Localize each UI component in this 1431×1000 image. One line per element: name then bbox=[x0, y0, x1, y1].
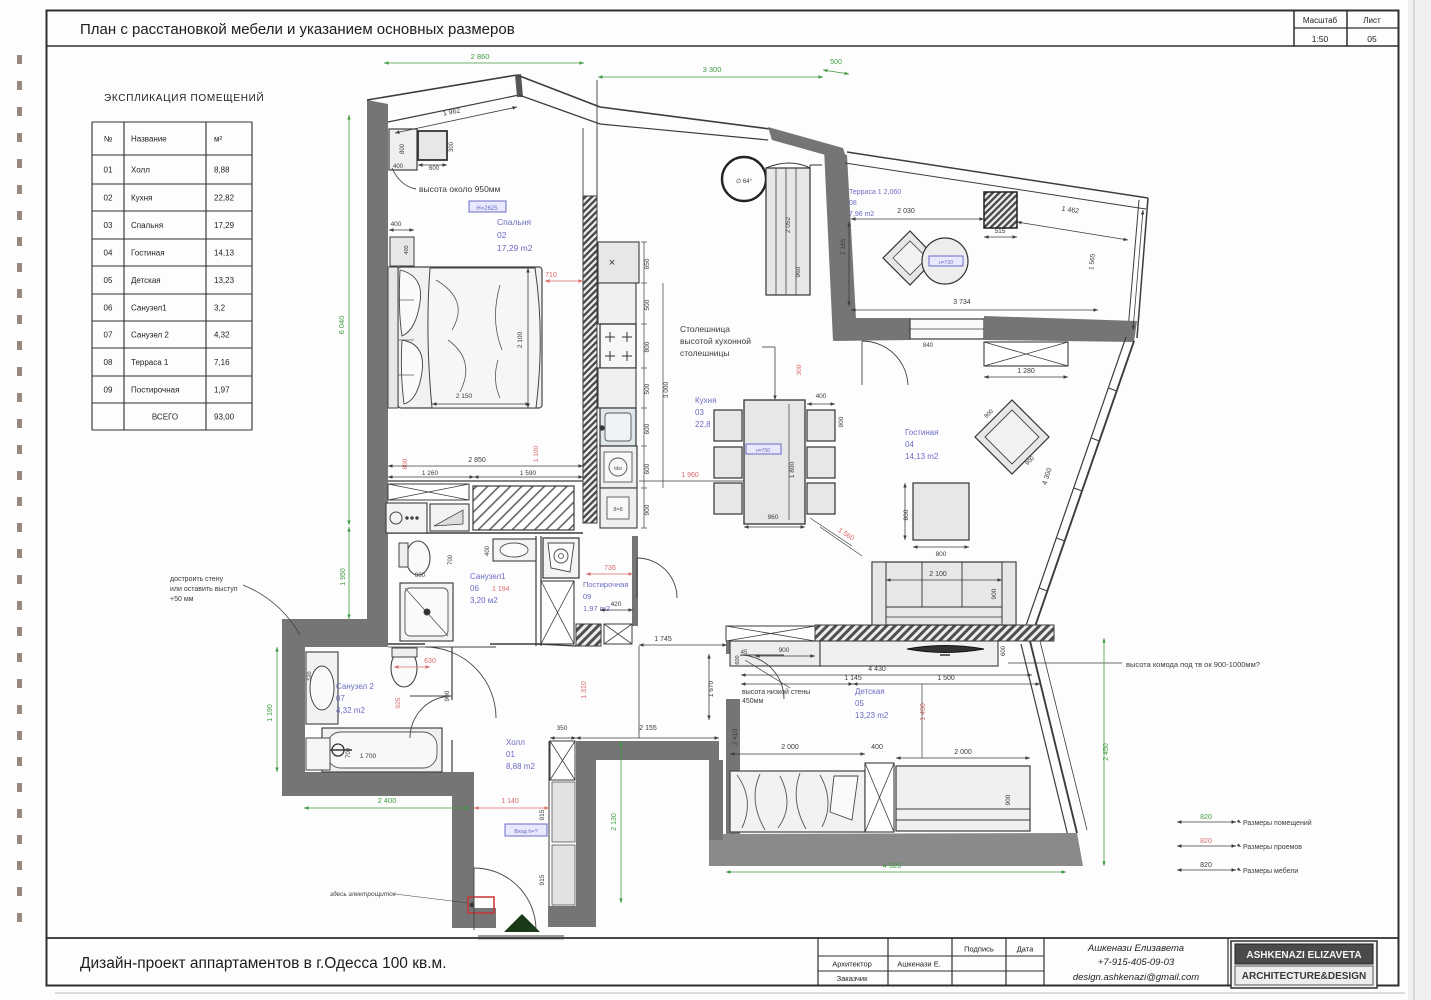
svg-text:8,88: 8,88 bbox=[214, 166, 230, 175]
svg-text:Заказчик: Заказчик bbox=[837, 974, 869, 983]
svg-text:4,32: 4,32 bbox=[214, 331, 230, 340]
svg-text:×: × bbox=[609, 257, 615, 269]
svg-text:3 000: 3 000 bbox=[663, 381, 670, 398]
svg-text:09: 09 bbox=[104, 386, 113, 395]
svg-text:Кухня: Кухня bbox=[695, 396, 716, 405]
svg-text:1 450: 1 450 bbox=[920, 703, 927, 721]
svg-text:1 100: 1 100 bbox=[533, 445, 540, 462]
svg-text:высота низкой стены: высота низкой стены bbox=[742, 688, 810, 696]
svg-text:650: 650 bbox=[644, 258, 651, 269]
svg-text:Терраса 1: Терраса 1 bbox=[131, 358, 169, 367]
svg-text:1 140: 1 140 bbox=[501, 798, 519, 805]
svg-text:1 960: 1 960 bbox=[681, 472, 699, 479]
svg-text:4,32 m2: 4,32 m2 bbox=[336, 706, 365, 715]
svg-text:∅ 64°: ∅ 64° bbox=[736, 178, 753, 185]
svg-text:05: 05 bbox=[104, 276, 113, 285]
svg-text:1 700: 1 700 bbox=[360, 753, 377, 760]
svg-text:design.ashkenazi@gmail.com: design.ashkenazi@gmail.com bbox=[1073, 972, 1199, 983]
svg-text:1 260: 1 260 bbox=[422, 470, 439, 477]
svg-text:600: 600 bbox=[644, 463, 651, 474]
svg-text:Масштаб: Масштаб bbox=[1303, 16, 1338, 25]
svg-text:н=720: н=720 bbox=[939, 260, 953, 266]
svg-text:500: 500 bbox=[830, 59, 842, 66]
svg-text:4 430: 4 430 bbox=[868, 666, 886, 673]
svg-text:915: 915 bbox=[539, 809, 546, 820]
svg-text:500: 500 bbox=[644, 299, 651, 310]
svg-text:14,13: 14,13 bbox=[214, 249, 235, 258]
svg-text:900: 900 bbox=[838, 416, 845, 427]
svg-text:05: 05 bbox=[855, 699, 864, 708]
svg-text:05: 05 bbox=[1367, 34, 1377, 44]
svg-text:2 100: 2 100 bbox=[929, 571, 947, 578]
svg-text:22,82: 22,82 bbox=[214, 194, 235, 203]
svg-text:2 410: 2 410 bbox=[732, 728, 739, 745]
svg-text:Размеры проемов: Размеры проемов bbox=[1243, 844, 1302, 851]
svg-text:08: 08 bbox=[849, 200, 857, 207]
svg-text:Название: Название bbox=[131, 135, 167, 144]
svg-text:1 190: 1 190 bbox=[267, 704, 274, 722]
svg-text:высота комода под тв ок 900-10: высота комода под тв ок 900-1000мм? bbox=[1126, 660, 1260, 669]
svg-text:900: 900 bbox=[1005, 794, 1012, 805]
svg-text:3 300: 3 300 bbox=[703, 65, 722, 74]
svg-text:Размеры мебели: Размеры мебели bbox=[1243, 867, 1298, 875]
svg-text:07: 07 bbox=[336, 694, 345, 703]
svg-text:столешницы: столешницы bbox=[680, 348, 730, 358]
svg-text:800: 800 bbox=[903, 509, 910, 520]
svg-text:1 590: 1 590 bbox=[520, 470, 537, 477]
svg-text:Детская: Детская bbox=[855, 687, 885, 696]
svg-text:500: 500 bbox=[644, 383, 651, 394]
svg-text:600: 600 bbox=[644, 423, 651, 434]
svg-text:04: 04 bbox=[104, 249, 113, 258]
svg-text:1 280: 1 280 bbox=[1017, 368, 1035, 375]
svg-text:09: 09 bbox=[583, 592, 591, 601]
svg-text:736: 736 bbox=[604, 565, 616, 572]
svg-text:ASHKENAZI ELIZAVETA: ASHKENAZI ELIZAVETA bbox=[1246, 950, 1361, 961]
svg-text:Холл: Холл bbox=[131, 166, 150, 175]
svg-text:700: 700 bbox=[346, 747, 352, 758]
svg-text:2 000: 2 000 bbox=[954, 749, 972, 756]
svg-text:900: 900 bbox=[644, 504, 651, 515]
svg-text:здесь электрощиток: здесь электрощиток bbox=[329, 890, 397, 898]
svg-text:1:50: 1:50 bbox=[1312, 34, 1329, 44]
svg-text:630: 630 bbox=[424, 658, 436, 665]
svg-text:Гостиная: Гостиная bbox=[131, 249, 165, 258]
svg-text:13,23: 13,23 bbox=[214, 276, 235, 285]
svg-text:01: 01 bbox=[506, 750, 515, 759]
svg-text:Холл: Холл bbox=[506, 738, 525, 747]
svg-text:420: 420 bbox=[611, 601, 622, 608]
svg-text:2 100: 2 100 bbox=[517, 331, 524, 348]
svg-text:800: 800 bbox=[402, 458, 409, 469]
svg-text:Дата: Дата bbox=[1017, 945, 1034, 954]
svg-text:2 155: 2 155 bbox=[639, 725, 657, 732]
svg-text:840: 840 bbox=[923, 343, 934, 349]
svg-text:1 745: 1 745 bbox=[654, 636, 672, 643]
svg-text:800: 800 bbox=[415, 573, 426, 579]
svg-text:820: 820 bbox=[1200, 814, 1212, 821]
svg-text:8,88 m2: 8,88 m2 bbox=[506, 762, 535, 771]
svg-text:3 734: 3 734 bbox=[953, 299, 971, 306]
svg-text:высота около 950мм: высота около 950мм bbox=[419, 184, 501, 194]
svg-text:или оставить выступ: или оставить выступ bbox=[170, 586, 238, 593]
svg-text:Кухня: Кухня bbox=[131, 194, 152, 203]
svg-text:300: 300 bbox=[796, 364, 803, 375]
svg-text:1 310: 1 310 bbox=[581, 681, 588, 699]
svg-text:700: 700 bbox=[448, 554, 454, 565]
svg-text:710: 710 bbox=[545, 272, 557, 279]
svg-text:820: 820 bbox=[1200, 862, 1212, 869]
svg-text:400: 400 bbox=[391, 221, 402, 228]
svg-text:04: 04 bbox=[905, 440, 914, 449]
svg-text:Санузел1: Санузел1 bbox=[131, 304, 167, 313]
svg-text:Постирочная: Постирочная bbox=[131, 386, 179, 395]
svg-text:2 030: 2 030 bbox=[897, 208, 915, 215]
svg-text:45: 45 bbox=[741, 650, 748, 656]
svg-text:1 145: 1 145 bbox=[844, 675, 862, 682]
svg-text:Гостиная: Гостиная bbox=[905, 428, 939, 437]
svg-text:1 800: 1 800 bbox=[789, 461, 796, 478]
svg-text:Спальня: Спальня bbox=[497, 217, 532, 227]
svg-text:350: 350 bbox=[557, 725, 568, 732]
svg-text:06: 06 bbox=[104, 304, 113, 313]
svg-text:07: 07 bbox=[104, 331, 113, 340]
svg-text:Постирочная: Постирочная bbox=[583, 580, 628, 589]
svg-text:820: 820 bbox=[1200, 838, 1212, 845]
svg-text:1,97: 1,97 bbox=[214, 386, 230, 395]
svg-text:515: 515 bbox=[995, 228, 1006, 235]
svg-text:1 500: 1 500 bbox=[937, 675, 955, 682]
svg-text:План с расстановкой мебели и: План с расстановкой мебели и указанием о… bbox=[80, 21, 515, 38]
svg-text:915: 915 bbox=[539, 874, 546, 885]
svg-text:Санузел 2: Санузел 2 bbox=[336, 682, 374, 691]
svg-text:02: 02 bbox=[497, 230, 507, 240]
svg-text:2 130: 2 130 bbox=[611, 813, 618, 831]
svg-text:17,29 m2: 17,29 m2 bbox=[497, 243, 533, 253]
svg-text:400: 400 bbox=[871, 744, 883, 751]
svg-text:03: 03 bbox=[695, 408, 704, 417]
svg-text:3,20 м2: 3,20 м2 bbox=[470, 596, 498, 605]
svg-text:высотой кухонной: высотой кухонной bbox=[680, 336, 751, 346]
svg-text:900: 900 bbox=[779, 647, 790, 654]
svg-text:ARCHITECTURE&DESIGN: ARCHITECTURE&DESIGN bbox=[1242, 971, 1366, 982]
svg-text:Столешница: Столешница bbox=[680, 324, 730, 334]
svg-text:Детская: Детская bbox=[131, 276, 161, 285]
svg-text:02: 02 bbox=[104, 194, 113, 203]
svg-text:Терраса 1 2,060: Терраса 1 2,060 bbox=[849, 189, 901, 196]
svg-text:22,8: 22,8 bbox=[695, 420, 711, 429]
svg-text:н=750: н=750 bbox=[756, 448, 770, 454]
svg-text:300: 300 bbox=[449, 141, 455, 152]
svg-text:Дизайн-проект аппартаментов в: Дизайн-проект аппартаментов в г.Одесса 1… bbox=[80, 955, 447, 972]
svg-text:2 150: 2 150 bbox=[456, 393, 473, 400]
svg-text:2 165: 2 165 bbox=[840, 238, 848, 255]
svg-text:6 040: 6 040 bbox=[337, 316, 346, 335]
svg-text:Спальня: Спальня bbox=[131, 221, 163, 230]
svg-text:1 565: 1 565 bbox=[1088, 253, 1096, 270]
svg-text:Санузел 2: Санузел 2 bbox=[131, 331, 169, 340]
svg-text:2 860: 2 860 bbox=[471, 52, 490, 61]
svg-text:1 950: 1 950 bbox=[340, 568, 347, 586]
svg-text:7,96 m2: 7,96 m2 bbox=[849, 211, 874, 218]
svg-text:ВСЕГО: ВСЕГО bbox=[152, 413, 178, 422]
svg-text:2 850: 2 850 bbox=[468, 457, 486, 464]
svg-text:600: 600 bbox=[1001, 645, 1007, 656]
svg-text:2 400: 2 400 bbox=[378, 796, 397, 805]
svg-text:400: 400 bbox=[404, 245, 410, 254]
svg-text:960: 960 bbox=[795, 266, 802, 277]
svg-text:14,13 m2: 14,13 m2 bbox=[905, 452, 939, 461]
svg-text:ЭКСПЛИКАЦИЯ ПОМЕЩЕНИЙ: ЭКСПЛИКАЦИЯ ПОМЕЩЕНИЙ bbox=[104, 91, 264, 104]
svg-text:800: 800 bbox=[936, 551, 947, 558]
svg-text:Ашкенази Елизавета: Ашкенази Елизавета bbox=[1087, 943, 1184, 954]
svg-text:tdw: tdw bbox=[614, 466, 622, 472]
svg-text:достроить стену: достроить стену bbox=[170, 576, 224, 583]
svg-text:1 194: 1 194 bbox=[492, 586, 510, 593]
svg-text:7,16: 7,16 bbox=[214, 358, 230, 367]
svg-text:800: 800 bbox=[644, 341, 651, 352]
svg-text:2 000: 2 000 bbox=[781, 744, 799, 751]
svg-text:Подпись: Подпись bbox=[964, 945, 994, 954]
svg-text:17,29: 17,29 bbox=[214, 221, 235, 230]
svg-text:925: 925 bbox=[395, 697, 402, 708]
svg-text:520: 520 bbox=[307, 671, 313, 680]
svg-text:4 920: 4 920 bbox=[883, 861, 902, 870]
svg-text:+7-915-405-09-03: +7-915-405-09-03 bbox=[1098, 957, 1175, 968]
svg-text:Санузел1: Санузел1 bbox=[470, 572, 506, 581]
svg-text:Вход h=?: Вход h=? bbox=[514, 829, 537, 835]
svg-text:1,97 m2: 1,97 m2 bbox=[583, 604, 610, 613]
svg-text:400: 400 bbox=[393, 164, 404, 170]
svg-text:Ашкенази Е.: Ашкенази Е. bbox=[897, 960, 941, 969]
svg-text:Размеры помещений: Размеры помещений bbox=[1243, 819, 1312, 827]
svg-text:400: 400 bbox=[816, 393, 827, 400]
svg-text:08: 08 bbox=[104, 358, 113, 367]
svg-text:13,23 m2: 13,23 m2 bbox=[855, 711, 889, 720]
svg-text:960: 960 bbox=[768, 514, 779, 521]
svg-text:900: 900 bbox=[991, 588, 998, 599]
svg-text:600: 600 bbox=[429, 166, 440, 172]
svg-text:03: 03 bbox=[104, 221, 113, 230]
svg-text:450мм: 450мм bbox=[742, 698, 763, 705]
svg-text:м²: м² bbox=[214, 135, 223, 144]
svg-text:№: № bbox=[104, 135, 113, 144]
svg-text:+50 мм: +50 мм bbox=[170, 596, 194, 603]
svg-text:600: 600 bbox=[735, 655, 741, 664]
svg-text:06: 06 bbox=[470, 584, 479, 593]
svg-text:2 052: 2 052 bbox=[785, 216, 792, 233]
svg-text:400: 400 bbox=[485, 545, 491, 556]
svg-text:Архитектор: Архитектор bbox=[832, 960, 872, 969]
svg-text:800: 800 bbox=[400, 143, 406, 154]
svg-text:H=2625: H=2625 bbox=[476, 206, 498, 212]
svg-text:93,00: 93,00 bbox=[214, 413, 235, 422]
svg-text:8=8: 8=8 bbox=[613, 507, 622, 513]
svg-text:Лист: Лист bbox=[1363, 16, 1381, 25]
svg-text:3,2: 3,2 bbox=[214, 304, 226, 313]
svg-text:01: 01 bbox=[104, 166, 113, 175]
